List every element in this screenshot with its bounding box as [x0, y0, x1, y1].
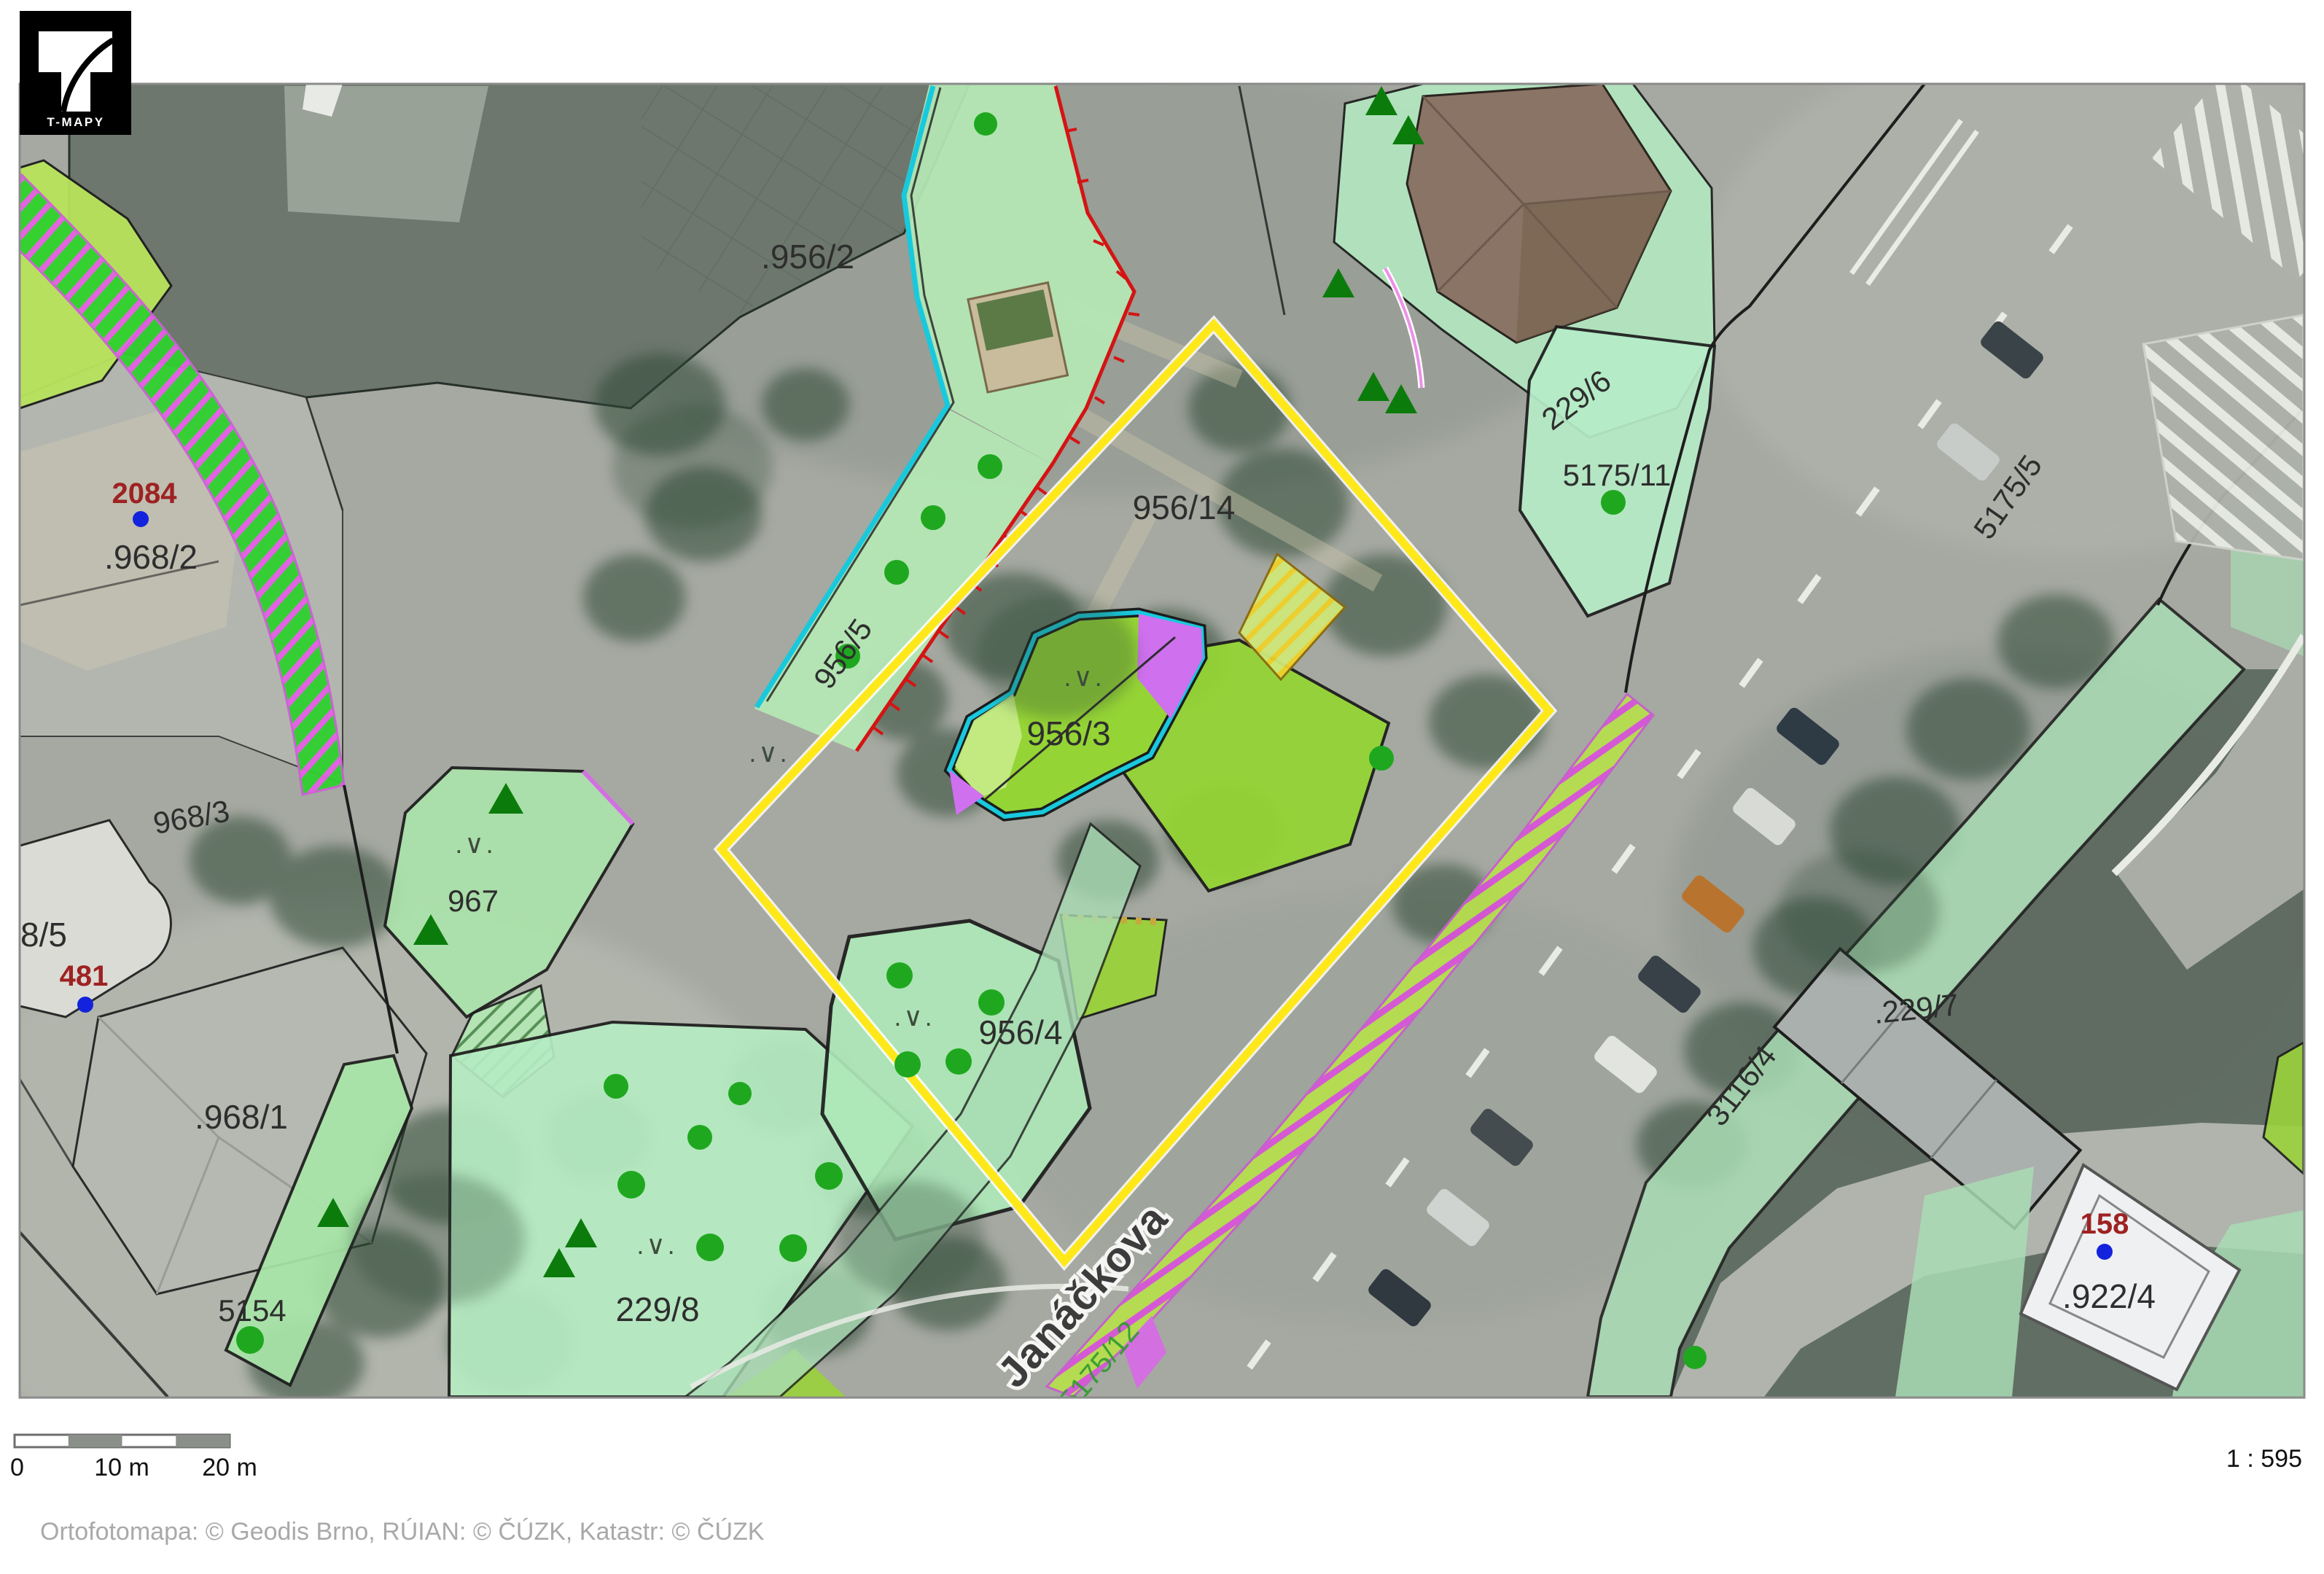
scale-tick-0: 0	[10, 1454, 24, 1481]
parcel-label-967: 967	[448, 884, 499, 918]
scale-ratio: 1 : 595	[2226, 1445, 2302, 1473]
t-mapy-logo: T-MAPY	[20, 11, 131, 135]
scale-bar: 0 10 m 20 m	[10, 1435, 257, 1481]
parcel-label-5154: 5154	[218, 1293, 286, 1328]
parcel-label-956-3: 956/3	[1026, 714, 1110, 752]
grass-symbol: .∨.	[1064, 662, 1104, 692]
parcel-label-956-2: .956/2	[761, 238, 854, 276]
parcel-label-968-2: .968/2	[104, 538, 198, 576]
parcel-label-5175-11: 5175/11	[1563, 458, 1672, 492]
grass-symbol: .∨.	[636, 1230, 676, 1260]
attribution-text: Ortofotomapa: © Geodis Brno, RÚIAN: © ČÚ…	[40, 1518, 765, 1546]
scale-tick-20m: 20 m	[202, 1454, 257, 1481]
parcel-label-8-5: 8/5	[20, 916, 67, 954]
map-viewer-page: .∨. .∨. .∨. .∨. .∨. .956/2 956/5 956/14 …	[0, 0, 2324, 1574]
building-number-481: 481	[60, 960, 109, 992]
parcel-label-922-4: .922/4	[2062, 1277, 2156, 1315]
parcel-label-956-14: 956/14	[1133, 488, 1236, 526]
t-mapy-logo-text: T-MAPY	[47, 115, 104, 129]
scale-tick-10m: 10 m	[94, 1454, 149, 1481]
building-number-158: 158	[2081, 1208, 2129, 1240]
grass-symbol: .∨.	[749, 738, 789, 768]
parcel-label-956-4: 956/4	[978, 1013, 1062, 1051]
map-canvas[interactable]: .∨. .∨. .∨. .∨. .∨. .956/2 956/5 956/14 …	[0, 29, 2324, 1509]
parcel-label-229-8: 229/8	[615, 1290, 699, 1328]
grass-symbol: .∨.	[455, 829, 495, 859]
grass-symbol: .∨.	[894, 1002, 934, 1032]
parcel-label-968-1: .968/1	[195, 1098, 288, 1136]
building-number-2084: 2084	[112, 478, 178, 510]
